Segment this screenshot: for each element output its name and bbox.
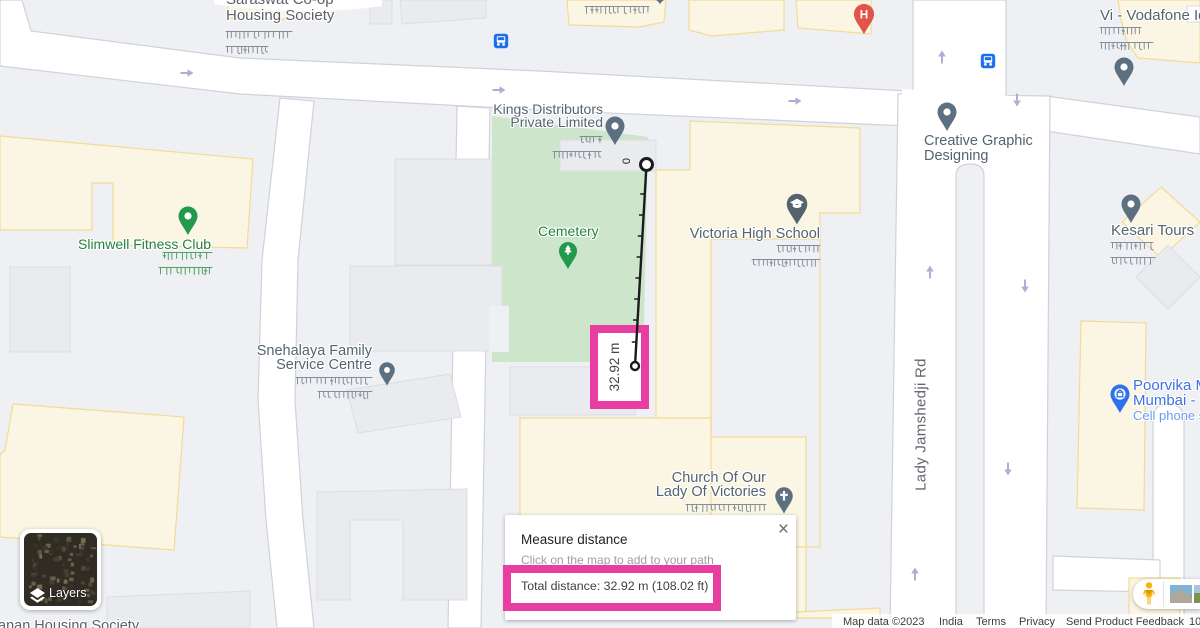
svg-text:32.92 m: 32.92 m xyxy=(607,343,622,392)
svg-text:0: 0 xyxy=(621,158,633,164)
svg-text:H: H xyxy=(860,8,868,21)
